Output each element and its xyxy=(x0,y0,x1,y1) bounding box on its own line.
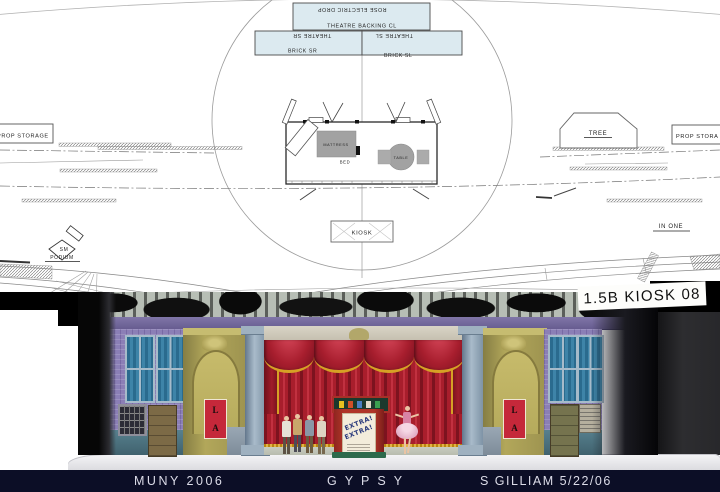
photo-edge-right-panel xyxy=(658,308,720,455)
window-right-1 xyxy=(548,335,578,403)
valance-swag xyxy=(264,340,314,373)
poster-letter: L xyxy=(205,400,226,418)
fine-print xyxy=(347,443,370,451)
door-left xyxy=(148,405,177,457)
label-theatre-sr: THEATRE SR xyxy=(293,32,331,38)
tree-unit: TREE xyxy=(560,113,637,148)
door-right xyxy=(550,404,579,457)
chair-shape xyxy=(417,150,429,164)
la-poster-right: L A xyxy=(503,399,526,439)
figure-man xyxy=(293,414,302,454)
label-prop-storage-right: PROP STORA xyxy=(676,134,718,140)
kiosk-extra-poster: EXTRA! EXTRA! xyxy=(342,413,376,455)
tree-photo-band xyxy=(78,292,658,319)
label-bed: BED xyxy=(340,160,350,165)
label-mattress: MATTRESS xyxy=(323,143,348,147)
ballerina-leg xyxy=(404,438,406,454)
label-kiosk: KIOSK xyxy=(352,231,373,237)
poster-letter: A xyxy=(504,418,525,436)
door-swings xyxy=(323,102,405,122)
poster-letter: A xyxy=(205,418,226,436)
figure-man xyxy=(282,416,291,456)
label-brick-sr: BRICK SR xyxy=(288,49,317,55)
ballerina-figure xyxy=(392,406,422,456)
kiosk-unit: KIOSK xyxy=(331,221,393,242)
label-prop-storage-left: PROP STORAGE xyxy=(0,134,49,140)
sm-podium: SM PODIUM xyxy=(45,226,83,262)
label-tree: TREE xyxy=(589,131,607,137)
label-in-one: IN ONE xyxy=(659,224,683,230)
set-rendering: L A xyxy=(78,292,658,462)
curtain-valance xyxy=(264,340,464,372)
valance-swag xyxy=(314,340,364,373)
figure-man xyxy=(305,415,314,455)
column-left xyxy=(245,326,266,455)
designer-credit: S GILLIAM 5/22/06 xyxy=(480,470,612,492)
house-unit: MATTRESS BED TABLE xyxy=(282,99,440,184)
label-sm: SM xyxy=(60,247,69,253)
crest-ornament-left xyxy=(202,335,227,351)
shadow-band-left xyxy=(78,292,116,455)
in-one-note: IN ONE xyxy=(653,224,690,231)
window-left-1 xyxy=(125,335,155,403)
kiosk-base xyxy=(332,452,386,458)
shadow-band-right xyxy=(592,292,658,455)
label-table: TABLE xyxy=(394,156,409,160)
la-poster-left: L A xyxy=(204,399,227,439)
ballerina-leg xyxy=(407,438,411,453)
cornice-right xyxy=(483,328,547,335)
label-theatre-sl: THEATRE SL xyxy=(375,32,413,38)
backing-storage-boxes: ROSE ELECTRIC DROP THEATRE BACKING CL TH… xyxy=(255,3,462,59)
venue-label: MUNY 2006 xyxy=(134,470,224,492)
figure-man xyxy=(317,416,326,456)
column-right xyxy=(462,326,483,455)
ground-plan: ROSE ELECTRIC DROP THEATRE BACKING CL TH… xyxy=(0,0,720,330)
label-podium: PODIUM xyxy=(50,255,74,261)
valance-swag xyxy=(364,340,414,373)
label-rose-electric-drop: ROSE ELECTRIC DROP xyxy=(317,6,386,12)
ballerina-skirt xyxy=(396,423,418,439)
ballerina-head xyxy=(405,406,410,411)
valance-swag xyxy=(414,340,464,373)
label-brick-sl: BRICK SL xyxy=(384,53,412,59)
window-left-2 xyxy=(156,335,185,403)
set-design-sheet: ROSE ELECTRIC DROP THEATRE BACKING CL TH… xyxy=(0,0,720,492)
cornice-left xyxy=(183,328,247,335)
title-block-bar: MUNY 2006 GYPSY S GILLIAM 5/22/06 xyxy=(0,470,720,492)
show-title: GYPSY xyxy=(327,470,410,492)
label-theatre-backing: THEATRE BACKING CL xyxy=(327,24,397,30)
chair-shape xyxy=(378,150,391,164)
news-kiosk: EXTRA! EXTRA! xyxy=(334,396,384,458)
pedestal-right xyxy=(483,427,501,455)
poster-letter: L xyxy=(504,400,525,418)
crest-ornament-right xyxy=(501,335,526,351)
barred-window-left xyxy=(118,404,147,436)
